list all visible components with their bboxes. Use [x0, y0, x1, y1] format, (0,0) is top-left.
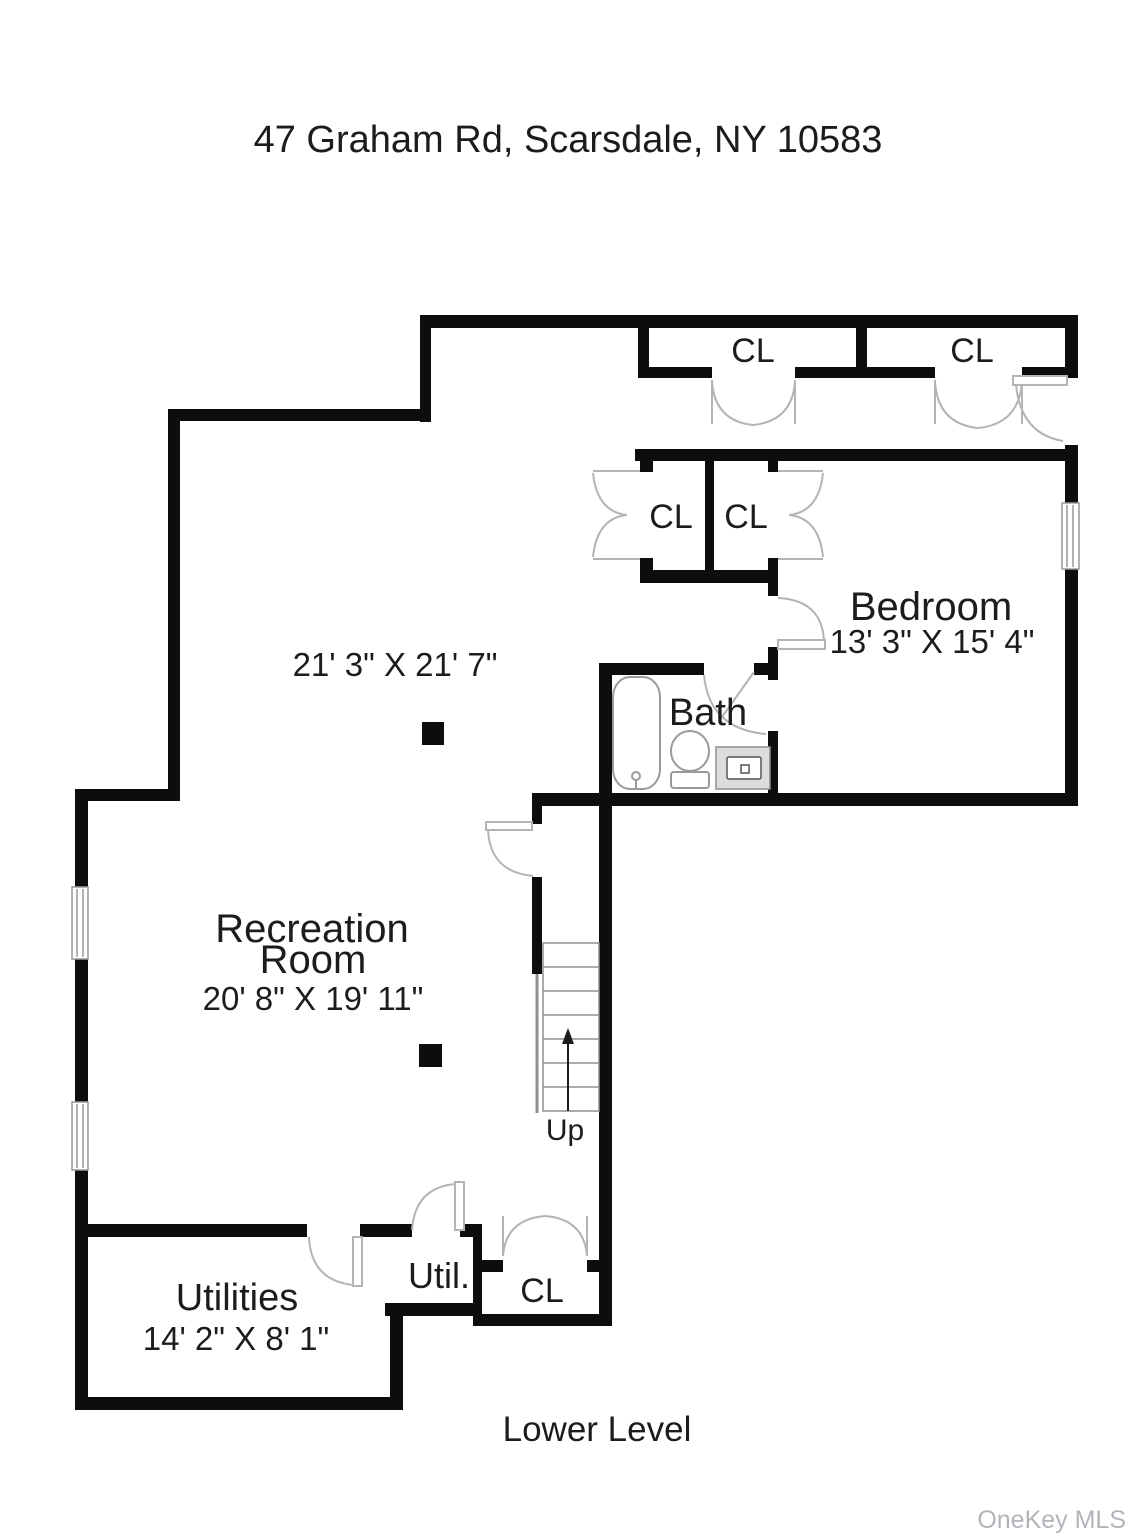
closet-label: CL — [649, 498, 692, 536]
floor-level-label: Lower Level — [503, 1410, 692, 1449]
door-icon — [1013, 376, 1067, 441]
wall-util-closet-bottom — [385, 1303, 482, 1316]
closet-label: CL — [731, 332, 774, 370]
closet-label: CL — [724, 498, 767, 536]
room-name-bath: Bath — [669, 692, 747, 734]
wall-closet-top-b — [587, 1260, 612, 1272]
wall-bath-top-b — [754, 663, 778, 675]
wall-top — [420, 315, 1078, 328]
wall-bedroom-bottom — [532, 793, 1078, 806]
wall-bath-top-a — [599, 663, 704, 675]
wall-left-lower-b — [75, 959, 88, 1102]
window-icon — [1062, 503, 1079, 569]
bifold-door-icon — [935, 380, 1022, 428]
closet-label: CL — [520, 1272, 563, 1310]
wall-midcloset-left-b — [640, 558, 653, 583]
room-name-recreation-2: Room — [260, 938, 367, 982]
wall-stair-left — [532, 877, 542, 974]
wall-bedroom-top — [635, 449, 1065, 461]
wall-topcloset-left — [638, 328, 649, 378]
bathtub-icon — [613, 677, 660, 789]
stairs-up-label: Up — [546, 1114, 584, 1147]
door-icon — [778, 598, 825, 649]
wall-topcloset-divider — [856, 328, 867, 378]
wall-stair-stub — [532, 806, 542, 824]
labels: 47 Graham Rd, Scarsdale, NY 10583 CL CL … — [143, 119, 1126, 1534]
floor-plan-svg: 47 Graham Rd, Scarsdale, NY 10583 CL CL … — [0, 0, 1136, 1536]
closet-label: CL — [950, 332, 993, 370]
walls — [75, 315, 1078, 1410]
wall-midcloset-left-a — [640, 449, 653, 472]
bifold-door-icon — [778, 471, 823, 559]
watermark: OneKey MLS — [977, 1506, 1126, 1534]
wall-step-vertical — [420, 315, 431, 422]
bifold-door-icon — [712, 380, 795, 425]
wall-recroom-bottom-b — [360, 1224, 412, 1237]
bifold-door-icon — [593, 471, 640, 559]
wall-bottom — [75, 1397, 403, 1410]
wall-utilities-right-lower — [390, 1305, 403, 1410]
wall-step2-horizontal — [75, 789, 180, 801]
wall-right-lower — [599, 806, 612, 1326]
wall-recroom-bottom-a — [88, 1224, 307, 1237]
staircase — [537, 943, 599, 1113]
room-name-util-closet: Util. — [408, 1255, 470, 1296]
floor-plan-page: 47 Graham Rd, Scarsdale, NY 10583 CL CL … — [0, 0, 1136, 1536]
window-icon — [72, 887, 88, 959]
room-dims-utilities: 14' 2" X 8' 1" — [143, 1320, 329, 1357]
post-icon — [422, 722, 444, 745]
address-title: 47 Graham Rd, Scarsdale, NY 10583 — [254, 119, 883, 161]
door-icon — [486, 822, 533, 876]
wall-closet-top-a — [473, 1260, 503, 1272]
room-dims-bedroom: 13' 3" X 15' 4" — [830, 623, 1035, 660]
sink-vanity-icon — [716, 747, 770, 789]
wall-topcloset-bottom-a — [649, 367, 712, 378]
wall-left-lower-a — [75, 789, 88, 888]
bifold-door-icon — [503, 1216, 587, 1256]
wall-midcloset-bottom — [653, 570, 778, 583]
room-dims-secondary: 21' 3" X 21' 7" — [293, 646, 498, 683]
room-dims-recreation: 20' 8" X 19' 11" — [203, 980, 424, 1017]
wall-left-lower-c — [75, 1170, 88, 1410]
wall-closet-bottom — [473, 1314, 612, 1326]
wall-bath-west — [599, 663, 612, 793]
wall-bedroom-west-a — [768, 449, 778, 472]
door-icon — [309, 1237, 362, 1286]
wall-bedroom-west-b — [768, 558, 778, 596]
door-icon — [412, 1182, 464, 1230]
toilet-icon — [671, 731, 709, 788]
wall-midcloset-divider — [705, 449, 714, 583]
wall-left-upper — [168, 409, 180, 801]
wall-step-horizontal — [168, 409, 431, 421]
wall-right-bedroom — [1065, 569, 1078, 806]
post-icon — [419, 1044, 442, 1067]
wall-right-top — [1065, 315, 1078, 378]
wall-right-mid — [1065, 445, 1078, 505]
room-name-utilities: Utilities — [176, 1277, 298, 1319]
window-icon — [72, 1102, 88, 1170]
